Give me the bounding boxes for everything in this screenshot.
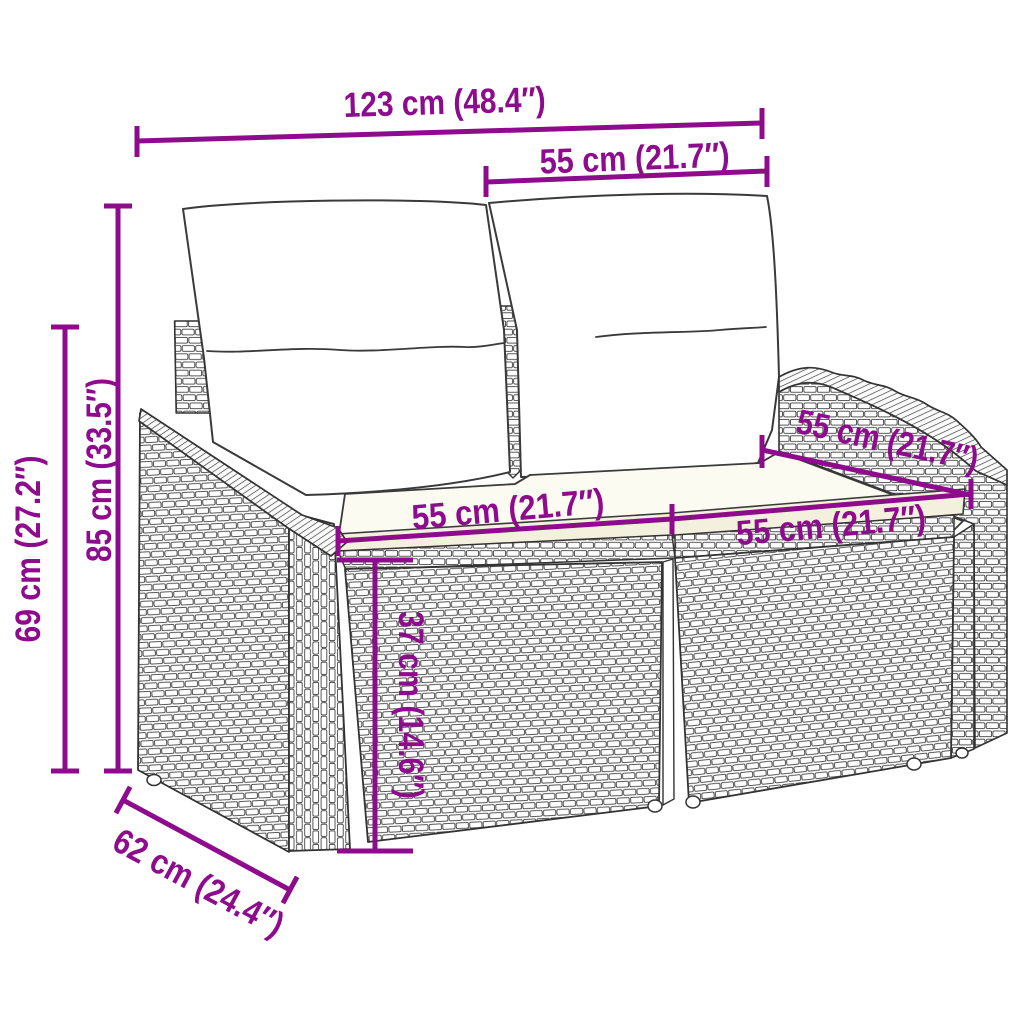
svg-text:37 cm (14.6″): 37 cm (14.6″)	[391, 611, 430, 799]
svg-text:123 cm (48.4″): 123 cm (48.4″)	[343, 80, 546, 125]
svg-text:55 cm (21.7″): 55 cm (21.7″)	[539, 135, 730, 181]
svg-text:69 cm (27.2″): 69 cm (27.2″)	[9, 456, 48, 643]
svg-text:85 cm (33.5″): 85 cm (33.5″)	[80, 378, 119, 562]
